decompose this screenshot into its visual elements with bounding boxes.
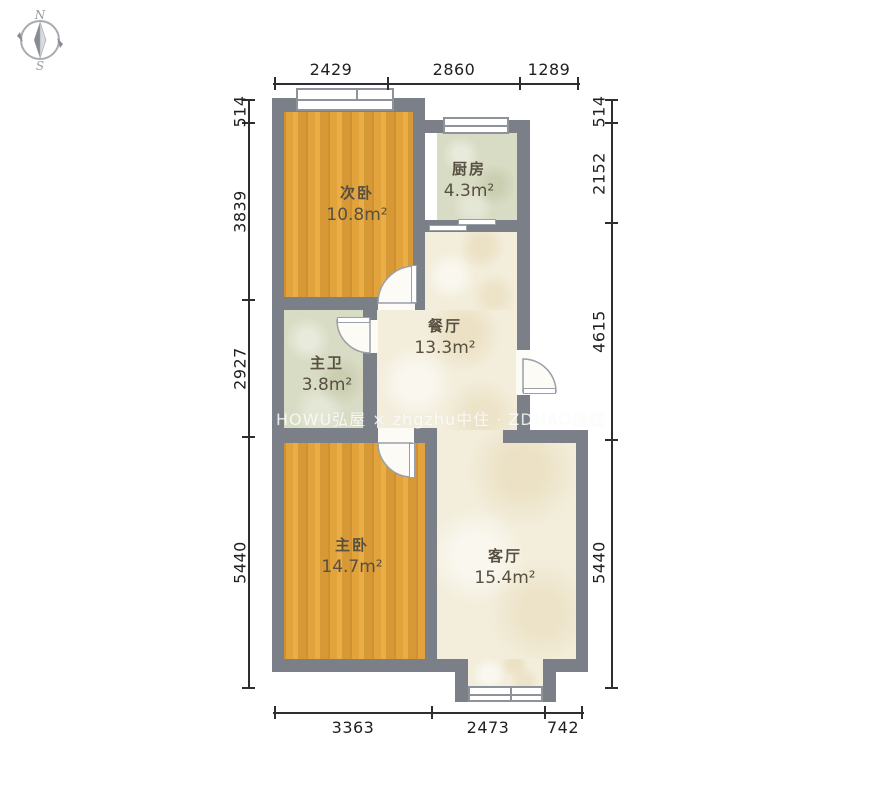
kitchen-label: 厨房 4.3m² [414, 158, 524, 201]
master-bathroom-label: 主卫 3.8m² [272, 352, 382, 395]
room-area: 4.3m² [414, 181, 524, 201]
room-name: 客厅 [450, 545, 560, 566]
dim-top-2: 1289 [509, 60, 589, 79]
dim-top-0: 2429 [291, 60, 371, 79]
room-name: 厨房 [414, 158, 524, 179]
master-bedroom-door-leaf [409, 443, 415, 478]
master-bedroom-door-arc [378, 443, 412, 477]
dim-left-1: 3839 [231, 172, 250, 252]
door-arcs [0, 0, 874, 800]
floorplan-canvas: N S [0, 0, 874, 800]
room-name: 主卧 [297, 534, 407, 555]
dim-line-bottom [273, 712, 584, 714]
dining-room-label: 餐厅 13.3m² [390, 315, 500, 358]
room-name: 主卫 [272, 352, 382, 373]
dim-right-3: 5440 [590, 523, 609, 603]
dim-left-0: 514 [231, 72, 250, 152]
secondary-bedroom-door-leaf [411, 265, 417, 303]
dim-top-1: 2860 [414, 60, 494, 79]
secondary-bedroom-door-arc [378, 266, 415, 303]
room-area: 3.8m² [272, 375, 382, 395]
room-area: 10.8m² [302, 205, 412, 225]
bathroom-door-arc [337, 320, 370, 353]
dim-right-1: 2152 [590, 134, 609, 214]
watermark: HOWU弘屋 × zhgzhu中住 · ZDHAO佳住 [276, 406, 606, 430]
dim-line-right [611, 99, 613, 689]
dim-bottom-1: 2473 [448, 718, 528, 737]
dim-left-2: 2927 [231, 329, 250, 409]
dim-bottom-2: 742 [523, 718, 603, 737]
room-area: 13.3m² [390, 338, 500, 358]
room-area: 15.4m² [450, 568, 560, 588]
room-area: 14.7m² [297, 557, 407, 577]
living-room-label: 客厅 15.4m² [450, 545, 560, 588]
dim-line-top [273, 83, 580, 85]
secondary-bedroom-label: 次卧 10.8m² [302, 182, 412, 225]
dim-right-2: 4615 [590, 292, 609, 372]
master-bedroom-label: 主卧 14.7m² [297, 534, 407, 577]
room-name: 餐厅 [390, 315, 500, 336]
dim-left-3: 5440 [231, 523, 250, 603]
entry-door-leaf [523, 388, 556, 394]
room-name: 次卧 [302, 182, 412, 203]
bathroom-door-leaf [337, 317, 370, 323]
dim-bottom-0: 3363 [313, 718, 393, 737]
